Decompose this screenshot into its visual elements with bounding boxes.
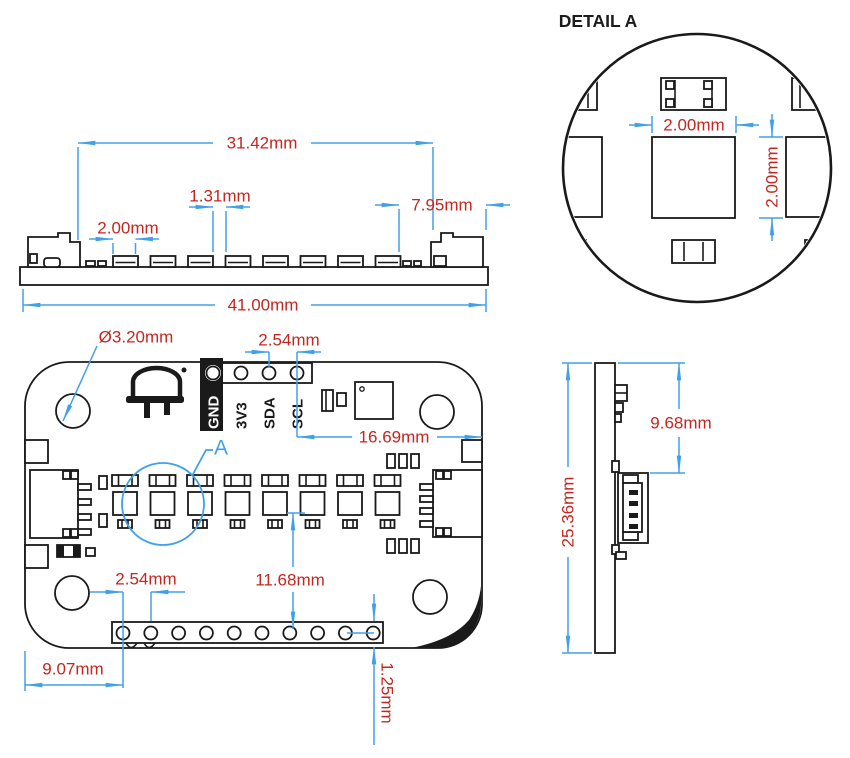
- mounting-hole: [420, 395, 454, 429]
- dim-label: 2.54mm: [115, 570, 176, 589]
- connector-pin: [78, 529, 91, 535]
- dim-label: 25.36mm: [559, 477, 578, 548]
- pin-hole: [207, 367, 220, 380]
- dim-led-width: 2.00mm: [89, 219, 159, 255]
- view-top-side: 31.42mm 1.31mm 2.00mm 7.95mm: [20, 134, 510, 315]
- left-connector-foot: [44, 258, 60, 267]
- pcb-dimension-drawing: 31.42mm 1.31mm 2.00mm 7.95mm: [0, 0, 850, 758]
- corner-pad-top-left: [553, 78, 597, 110]
- dim-board-height: 25.36mm: [559, 363, 593, 653]
- right-connector-notch: [434, 256, 446, 266]
- connector-pin: [629, 524, 638, 529]
- through-hole: [228, 627, 241, 640]
- dim-label: 2.00mm: [97, 219, 158, 238]
- component-bump: [151, 256, 176, 267]
- connector-pin: [629, 501, 638, 506]
- neighbor-led-left: [550, 137, 602, 217]
- through-hole: [172, 627, 185, 640]
- mounting-hole: [413, 580, 447, 614]
- mounting-hole: [55, 576, 89, 610]
- through-hole: [283, 627, 296, 640]
- component-bump: [338, 256, 363, 267]
- dim-edge-to-hole: 9.07mm: [25, 651, 123, 691]
- dim-label: 9.68mm: [650, 414, 711, 433]
- dim-top-to-connector: 9.68mm: [618, 363, 712, 473]
- through-hole: [256, 627, 269, 640]
- component-bump: [376, 256, 401, 267]
- small-pad: [99, 514, 107, 527]
- component-bump: [301, 256, 326, 267]
- connector-pin: [420, 484, 433, 490]
- component-bump: [226, 256, 251, 267]
- dim-label: 9.07mm: [42, 660, 103, 679]
- pcb-board-edge: [595, 363, 615, 653]
- connector-pin: [629, 490, 638, 495]
- small-pad: [403, 261, 411, 266]
- edge-pad: [462, 440, 482, 462]
- small-pad: [414, 261, 421, 266]
- pcb-side-profile: [20, 233, 488, 285]
- header-pins-side: [615, 385, 627, 422]
- small-pad: [612, 461, 619, 472]
- view-detail-a: DETAIL A: [550, 11, 836, 302]
- pin-label-sda: SDA: [262, 397, 279, 429]
- connector-pin: [420, 508, 433, 514]
- dim-label: 2.00mm: [763, 146, 782, 207]
- through-hole: [144, 627, 157, 640]
- pin-hole: [235, 367, 248, 380]
- led-package: [652, 137, 735, 218]
- callout-label: A: [214, 437, 228, 460]
- pin-label-3v3: 3V3: [234, 402, 251, 429]
- view-right-side: 25.36mm 9.68mm: [559, 363, 712, 653]
- connector-pin: [420, 496, 433, 502]
- component-bump: [263, 256, 288, 267]
- through-hole: [311, 627, 324, 640]
- edge-pad: [25, 545, 48, 568]
- silkscreen-dot: [182, 368, 187, 373]
- component-bump: [188, 256, 213, 267]
- pcb-board-outline: [25, 362, 482, 648]
- connector-pin: [78, 499, 91, 505]
- view-front: GND 3V3 SDA SCL: [25, 328, 482, 746]
- bottom-pin-header: [112, 622, 383, 648]
- dim-board-width: 41.00mm: [23, 289, 486, 315]
- pcb-board-edge: [20, 267, 488, 285]
- dim-label: Ø3.20mm: [99, 328, 174, 347]
- dim-label: 16.69mm: [359, 428, 430, 447]
- dim-label: 11.68mm: [255, 571, 325, 590]
- through-hole: [200, 627, 213, 640]
- technical-drawing-canvas: 31.42mm 1.31mm 2.00mm 7.95mm: [0, 0, 850, 758]
- pin-label-scl: SCL: [290, 399, 307, 429]
- dim-label: 31.42mm: [227, 134, 298, 153]
- connector-pin: [78, 484, 91, 490]
- connector-pin: [420, 521, 433, 527]
- edge-pad: [25, 440, 48, 463]
- connector-pin: [629, 513, 638, 518]
- small-pad: [86, 261, 95, 266]
- corner-pad-bottom-left: [566, 240, 586, 263]
- small-pad: [98, 261, 106, 266]
- dim-led-gap: 1.31mm: [189, 187, 251, 253]
- resistor-group-top: [387, 454, 419, 468]
- ic-chip: [355, 382, 393, 419]
- left-connector-notch: [30, 254, 37, 263]
- bottom-pad-component: [672, 240, 715, 263]
- small-pad: [99, 476, 107, 489]
- detail-title: DETAIL A: [559, 11, 638, 31]
- dim-label: 7.95mm: [411, 196, 472, 215]
- dim-label: 41.00mm: [228, 296, 299, 315]
- small-pad: [616, 552, 626, 559]
- pin-label-gnd: GND: [206, 396, 223, 430]
- component-bump: [113, 256, 138, 267]
- dim-label: 1.25mm: [378, 662, 397, 723]
- top-pad-component: [661, 78, 726, 110]
- dim-label: 1.31mm: [189, 187, 250, 206]
- pin-hole: [263, 367, 276, 380]
- dim-label: 2.00mm: [663, 116, 724, 135]
- resistor-group-bottom: [387, 539, 419, 553]
- side-connector: [618, 473, 648, 543]
- connector-pin: [78, 514, 91, 520]
- dim-label: 2.54mm: [258, 331, 319, 350]
